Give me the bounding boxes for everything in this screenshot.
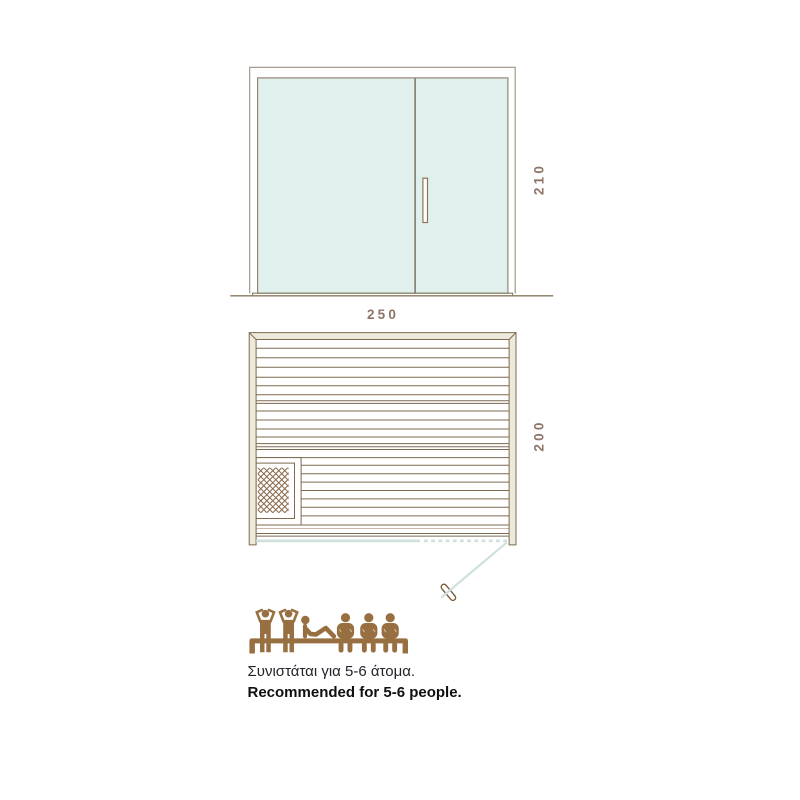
- svg-text:250: 250: [367, 307, 399, 322]
- svg-text:200: 200: [531, 419, 546, 451]
- svg-text:210: 210: [531, 163, 546, 195]
- svg-text:Recommended for 5-6 people.: Recommended for 5-6 people.: [248, 684, 462, 701]
- svg-text:Συνιστάται για 5-6 άτομα.: Συνιστάται για 5-6 άτομα.: [248, 663, 416, 680]
